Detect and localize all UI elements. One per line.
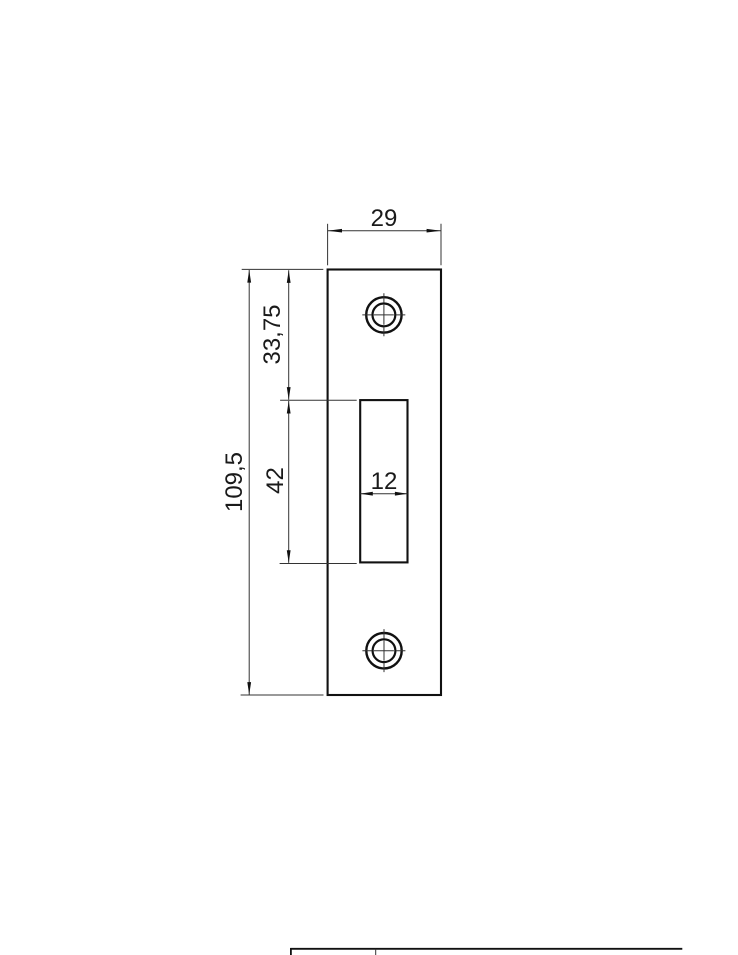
svg-text:33,75: 33,75 [259, 304, 286, 364]
svg-text:29: 29 [371, 205, 398, 232]
svg-text:109,5: 109,5 [221, 452, 248, 512]
svg-text:12: 12 [371, 468, 398, 495]
svg-text:42: 42 [262, 467, 289, 494]
